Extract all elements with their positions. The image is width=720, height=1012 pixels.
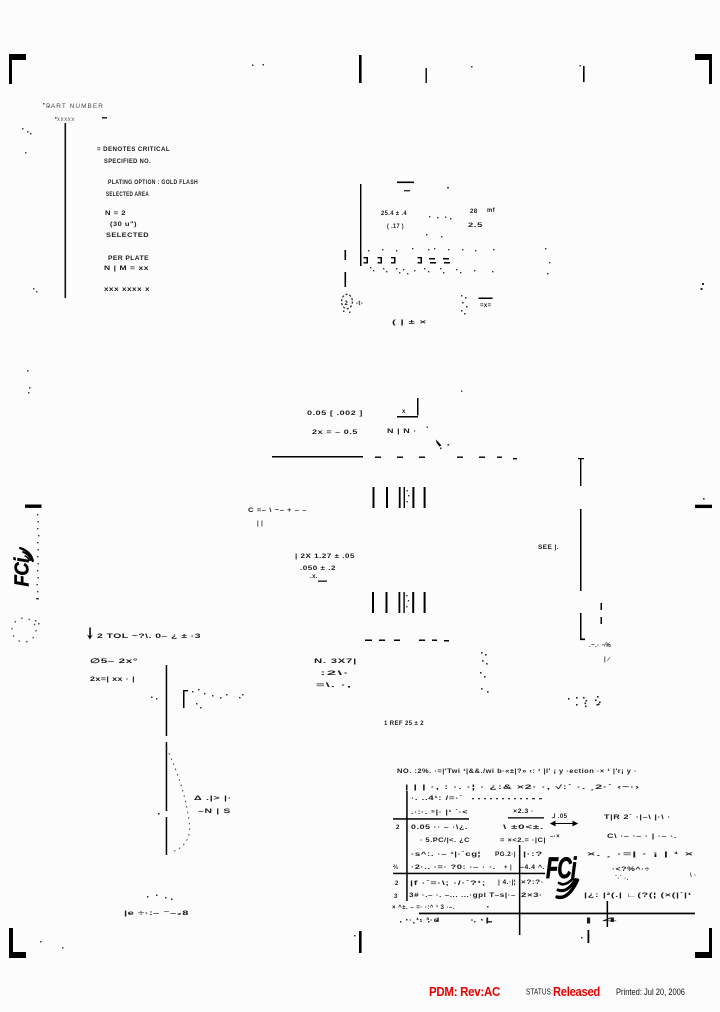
svg-text:| 4: | 4 — [585, 918, 619, 924]
svg-text:C =– \ ~– + – –: C =– \ ~– + – – — [248, 508, 307, 514]
svg-text:SEE |.: SEE |. — [538, 545, 559, 551]
svg-text:+ |: + | — [504, 865, 512, 871]
svg-text::2\·: :2\· — [320, 671, 350, 677]
svg-text:1 REF 25 ± 2: 1 REF 25 ± 2 — [384, 721, 424, 727]
svg-text:.x.: .x. — [310, 574, 318, 580]
svg-text:N = 2: N = 2 — [105, 211, 126, 217]
svg-text:SELECTED: SELECTED — [106, 233, 149, 239]
svg-text:2.5: 2.5 — [468, 223, 483, 229]
svg-text:=x=: =x= — [480, 303, 492, 309]
svg-text:\ ±0<±.: \ ±0<±. — [503, 825, 544, 831]
svg-text:2: 2 — [345, 301, 349, 307]
svg-text:-t-: -t- — [356, 301, 363, 307]
svg-text:PDM: Rev:AC: PDM: Rev:AC — [429, 984, 501, 999]
svg-text:2×3·: 2×3· — [521, 893, 543, 899]
svg-text:2: 2 — [396, 825, 400, 831]
svg-text:Printed: Jul 20, 2006: Printed: Jul 20, 2006 — [616, 987, 685, 998]
svg-text:25.4 ± .4: 25.4 ± .4 — [381, 211, 407, 217]
svg-text:· ·|: · ·| — [470, 918, 490, 924]
svg-text:C\ ·– ·– · | ·– ·.: C\ ·– ·– · | ·– ·. — [607, 834, 677, 840]
svg-text:2 TOL ~?\. 0– ¿ ± ·3: 2 TOL ~?\. 0– ¿ ± ·3 — [97, 633, 201, 640]
svg-text:N. 3X7|: N. 3X7| — [314, 659, 357, 665]
svg-text:·. ..4¹: /=·´: ·. ..4¹: /=·´ — [411, 795, 463, 802]
svg-text:SPECIFIED NO.: SPECIFIED NO. — [104, 159, 151, 165]
svg-text:2x = – 0.5: 2x = – 0.5 — [312, 430, 358, 436]
svg-text:N | N ·: N | N · — [387, 429, 417, 435]
svg-text:STATUS:: STATUS: — [526, 988, 553, 997]
svg-text:·s^:. ·– ¹|·`cg¦: ·s^:. ·– ¹|·`cg¦ — [411, 851, 481, 858]
svg-text:·2·.. ·=· ?0: ·– · ·.: ·2·.. ·=· ?0: ·– · ·. — [411, 865, 496, 871]
svg-text:`·´ ·.: `·´ ·. — [615, 876, 629, 882]
svg-text:xxxxx: xxxxx — [57, 117, 75, 123]
svg-text:SELECTED AREA: SELECTED AREA — [106, 192, 149, 198]
svg-text:·<?%^·÷: ·<?%^·÷ — [612, 867, 650, 873]
svg-text:| 4.·|¦: | 4.·|¦ — [498, 880, 516, 886]
svg-text:mf: mf — [487, 208, 496, 214]
svg-text:NO. :2%. ·=|'Twi ¹|&&./wi: NO. :2%. ·=|'Twi ¹|&&./wi b·«±|?» ‹: ¹ |… — [397, 768, 637, 775]
svg-text:PG.2·|: PG.2·| — [495, 852, 516, 858]
svg-text:x: x — [402, 409, 406, 415]
svg-text:xxx xxxx x: xxx xxxx x — [104, 287, 150, 293]
svg-text:.050 ± .2: .050 ± .2 — [300, 566, 336, 572]
svg-text:2: 2 — [395, 881, 399, 887]
svg-text:Δ .|> |·: Δ .|> |· — [194, 796, 232, 802]
svg-text:–4.4 ^.: –4.4 ^. — [520, 865, 545, 871]
svg-text:× ^±. – =· ·:^ ¹ 3 ·–.: × ^±. – =· ·:^ ¹ 3 ·–. — [392, 904, 455, 911]
svg-text:= ×<2.= ·|C|: = ×<2.= ·|C| — [500, 838, 546, 844]
svg-text:| 2X 1.27 ± .05: | 2X 1.27 ± .05 — [295, 554, 355, 560]
svg-text:3# ·.– ·. –... ...·gpl T–s|·–: 3# ·.– ·. –... ...·gpl T–s|·– — [409, 893, 516, 899]
svg-text:∅5– 2x°: ∅5– 2x° — [90, 657, 138, 665]
svg-text:= DENOTES CRITICAL: = DENOTES CRITICAL — [97, 147, 170, 153]
svg-text:⅔: ⅔ — [393, 865, 398, 871]
svg-text:\ ·: \ · — [690, 873, 697, 879]
svg-text:( .17 ): ( .17 ) — [387, 224, 404, 230]
svg-text:| |: | | — [257, 521, 263, 527]
svg-text:T|R 2´ ·|–\ |·\ ·: T|R 2´ ·|–\ |·\ · — [604, 815, 671, 821]
svg-text:×. ¸ ·=| · ¡ | ¹ ×: ×. ¸ ·=| · ¡ | ¹ × — [587, 851, 694, 858]
svg-text:Released: Released — [553, 984, 600, 999]
svg-text:|¿: |²(.| ∟(?(¦ (×(|`|¹: |¿: |²(.| ∟(?(¦ (×(|`|¹ — [584, 892, 692, 899]
svg-text:| | | ·, : ·. ·¦ · ¿:&: | | | ·, : ·. ·¦ · ¿:& ×2· ·, √:´ ·. ¸2·… — [405, 784, 640, 791]
svg-text:· 5.PC/|<. ¿C: · 5.PC/|<. ¿C — [420, 838, 470, 844]
svg-text:(30 u"): (30 u") — [110, 222, 137, 228]
svg-text:N | M = xx: N | M = xx — [104, 266, 149, 272]
svg-text:|·:?: |·:? — [523, 852, 543, 858]
svg-text:PLATING OPTION : GOLD FLASH: PLATING OPTION : GOLD FLASH — [108, 180, 198, 186]
svg-text:=\. ·,: =\. ·, — [316, 683, 352, 689]
svg-text:PART NUMBER: PART NUMBER — [46, 103, 104, 110]
svg-text:( | ± ×: ( | ± × — [392, 320, 427, 326]
svg-text:⅃ .05: ⅃ .05 — [551, 813, 568, 820]
svg-text:.~.· ¬%: .~.· ¬% — [589, 643, 611, 649]
svg-text:0.05 ·· – ·\¿.: 0.05 ·· – ·\¿. — [411, 825, 468, 831]
svg-text:3: 3 — [394, 894, 398, 900]
svg-text:×2.3 ·: ×2.3 · — [513, 809, 534, 815]
svg-text:PER PLATE: PER PLATE — [108, 256, 149, 262]
svg-text:28: 28 — [470, 209, 478, 215]
svg-text:.·:·. ⁵|· |¹ ´·<: .·:·. ⁵|· |¹ ´·< — [411, 809, 468, 816]
svg-text:|f ·`=·\; ·/·´?¹;: |f ·`=·\; ·/·´?¹; — [410, 880, 486, 887]
svg-text:FCi: FCi — [11, 557, 34, 586]
svg-text:–·×: –·× — [550, 834, 560, 840]
svg-text:×?:?·: ×?:?· — [521, 880, 544, 886]
svg-text:0.05 [ .002 ]: 0.05 [ .002 ] — [307, 411, 363, 417]
svg-text:|e ÷·:– ⁻–₂8: |e ÷·:– ⁻–₂8 — [124, 910, 189, 917]
svg-text:2x=| xx · |: 2x=| xx · | — [90, 676, 135, 683]
svg-text:–N | S: –N | S — [198, 809, 231, 815]
